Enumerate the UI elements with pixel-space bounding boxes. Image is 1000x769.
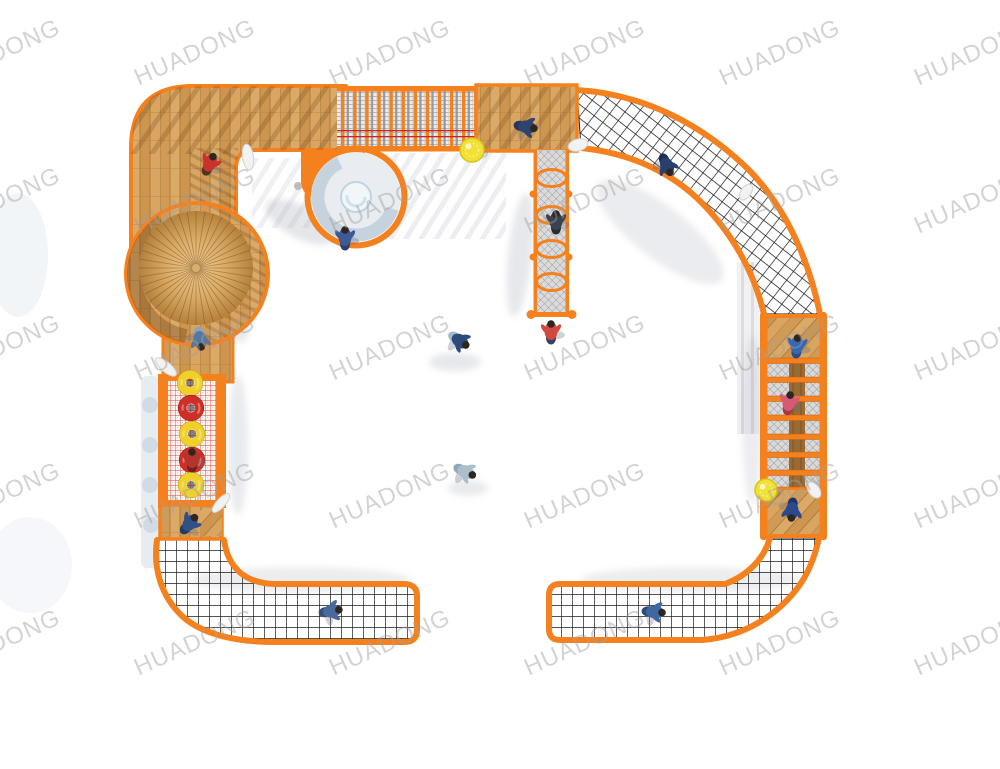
post-shadow bbox=[419, 90, 421, 148]
bridge-post bbox=[414, 89, 417, 149]
child-figure-below-tunnel bbox=[540, 320, 565, 344]
top-wood-deck bbox=[476, 85, 577, 151]
playground-structure bbox=[0, 0, 1000, 769]
post-shadow bbox=[443, 90, 445, 148]
bridge-post bbox=[377, 89, 380, 149]
post-shadow bbox=[431, 90, 433, 148]
climb-ring bbox=[179, 473, 204, 498]
pergola-shadow-stripes bbox=[478, 87, 575, 149]
bridge-post bbox=[438, 89, 441, 149]
post-shadow bbox=[383, 90, 385, 148]
post-shadow bbox=[371, 90, 373, 148]
figure-head bbox=[552, 210, 560, 218]
flat-net-bottom-right bbox=[549, 538, 819, 640]
post-shadow bbox=[407, 90, 409, 148]
ring-climb-wall bbox=[158, 371, 226, 509]
climb-ring bbox=[178, 371, 203, 396]
figure-head bbox=[188, 448, 196, 456]
deck-bench bbox=[200, 508, 222, 536]
ladder-rung bbox=[766, 415, 821, 421]
post-shadow bbox=[395, 90, 397, 148]
bridge-post bbox=[402, 89, 405, 149]
ladder-rung bbox=[766, 377, 821, 383]
playground-render: HUADONGHUADONGHUADONGHUADONGHUADONGHUADO… bbox=[0, 0, 1000, 769]
vertical-post-net-bridge bbox=[337, 86, 482, 152]
figure-head bbox=[547, 320, 555, 328]
bridge-post bbox=[450, 89, 453, 149]
post-shadow bbox=[456, 90, 458, 148]
bridge-post bbox=[341, 89, 344, 149]
bridge-post bbox=[426, 89, 429, 149]
climb-ring bbox=[179, 396, 204, 421]
safety-line bbox=[337, 130, 477, 131]
slide-knob bbox=[294, 182, 302, 190]
ladder-rung bbox=[766, 434, 821, 440]
bridge-post bbox=[389, 89, 392, 149]
climb-ring bbox=[180, 422, 205, 447]
ladder-rung bbox=[766, 470, 821, 476]
post-shadow bbox=[347, 90, 349, 148]
ladder-rung bbox=[766, 358, 821, 364]
crawl-net-tunnel bbox=[527, 150, 577, 319]
ladder-rung bbox=[766, 452, 821, 458]
bridge-post bbox=[365, 89, 368, 149]
bridge-post bbox=[353, 89, 356, 149]
ghost-reflections bbox=[0, 193, 759, 613]
flat-net-bottom-left bbox=[156, 540, 417, 642]
figure-head bbox=[341, 226, 349, 234]
climb-rings bbox=[178, 371, 205, 498]
post-shadow bbox=[359, 90, 361, 148]
